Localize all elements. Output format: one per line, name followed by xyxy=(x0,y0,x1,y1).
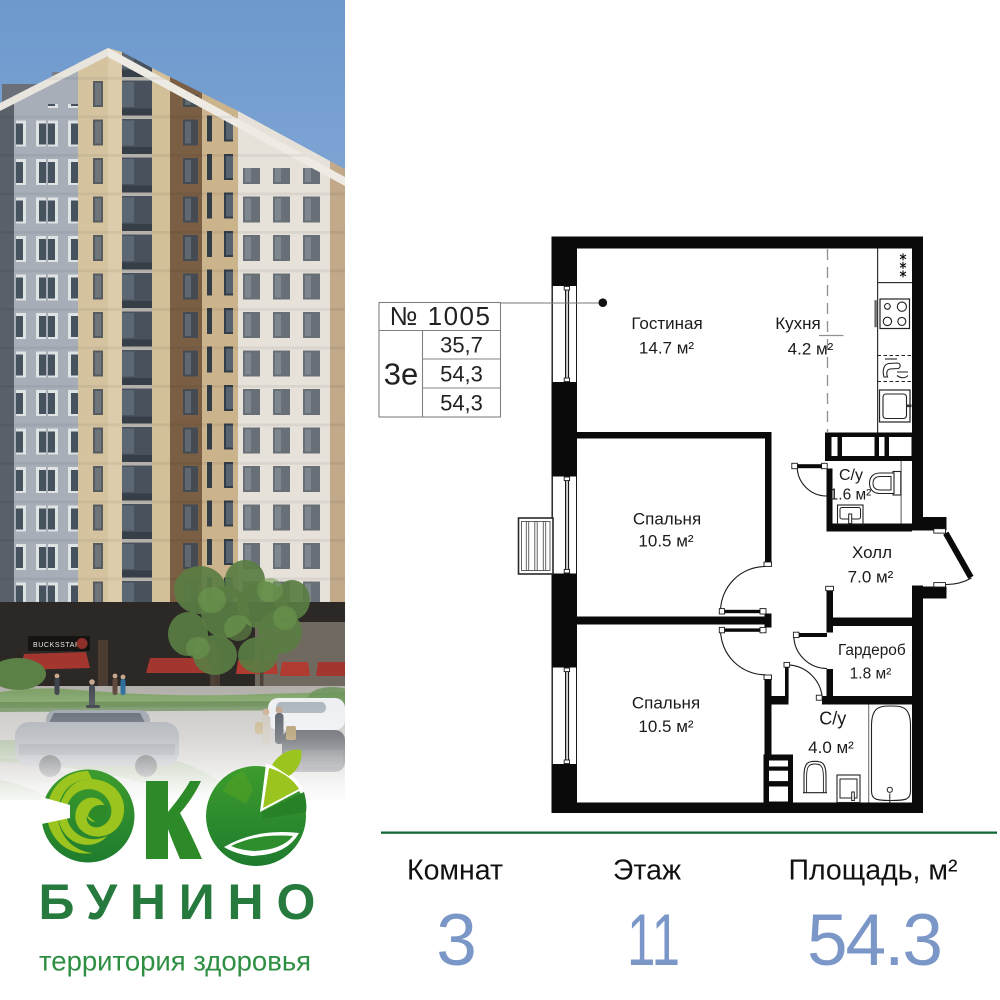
svg-text:54,3: 54,3 xyxy=(440,391,483,416)
svg-text:14.7 м²: 14.7 м² xyxy=(639,339,694,358)
svg-text:Гардероб: Гардероб xyxy=(838,642,906,659)
svg-text:Площадь, м²: Площадь, м² xyxy=(789,855,958,887)
svg-text:БУНИНО: БУНИНО xyxy=(39,874,329,930)
svg-text:Спальня: Спальня xyxy=(632,694,700,713)
svg-text:BUCKSSTAR: BUCKSSTAR xyxy=(33,642,81,649)
svg-text:С/у: С/у xyxy=(839,467,863,484)
svg-text:4.0 м²: 4.0 м² xyxy=(808,738,854,757)
svg-text:54.3: 54.3 xyxy=(807,900,941,981)
svg-text:Холл: Холл xyxy=(852,543,892,562)
svg-text:Гостиная: Гостиная xyxy=(631,314,702,333)
svg-text:С/у: С/у xyxy=(819,709,846,729)
svg-text:Этаж: Этаж xyxy=(613,855,681,887)
svg-text:Спальня: Спальня xyxy=(633,510,701,529)
svg-text:4.2 м²: 4.2 м² xyxy=(788,340,834,359)
svg-text:Комнат: Комнат xyxy=(407,855,503,887)
svg-text:35,7: 35,7 xyxy=(440,333,483,358)
svg-text:10.5 м²: 10.5 м² xyxy=(638,717,693,736)
svg-text:территория здоровья: территория здоровья xyxy=(39,946,311,977)
svg-text:10.5 м²: 10.5 м² xyxy=(638,532,693,551)
svg-text:3е: 3е xyxy=(384,357,418,392)
svg-text:1.8 м²: 1.8 м² xyxy=(850,666,892,683)
svg-text:7.0 м²: 7.0 м² xyxy=(848,568,894,587)
svg-text:54,3: 54,3 xyxy=(440,362,483,387)
svg-text:1.6 м²: 1.6 м² xyxy=(830,487,872,504)
svg-text:3: 3 xyxy=(436,900,477,981)
svg-text:11: 11 xyxy=(627,900,680,981)
svg-text:№ 1005: № 1005 xyxy=(390,301,492,331)
svg-text:Кухня: Кухня xyxy=(775,314,821,333)
